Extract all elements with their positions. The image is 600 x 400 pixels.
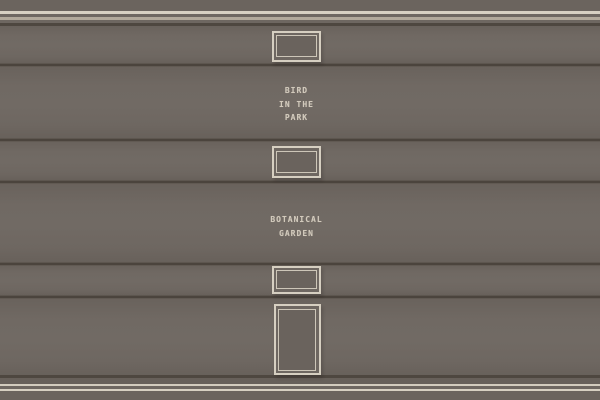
picture-frame-small-1-canvas (276, 35, 317, 57)
picture-frame-small-1[interactable] (272, 31, 322, 62)
wall-top-band (0, 0, 600, 11)
gallery-wall-scene: BIRD IN THE PARK BOTANICAL GARDEN (0, 0, 600, 400)
exhibit-label-garden-line-1: BOTANICAL (0, 213, 593, 227)
picture-frame-tall-canvas (278, 309, 316, 371)
cornice-line-bright (0, 11, 600, 14)
picture-frame-tall[interactable] (274, 304, 321, 375)
panel-divider-2 (0, 138, 600, 142)
baseboard-line-dark (0, 375, 600, 378)
picture-frame-small-3[interactable] (272, 266, 322, 294)
cornice-line-tan (0, 17, 600, 20)
exhibit-label-botanical-garden: BOTANICAL GARDEN (0, 213, 593, 241)
panel-divider-3 (0, 180, 600, 184)
panel-divider-5 (0, 295, 600, 299)
exhibit-label-bird-line-3: PARK (0, 111, 593, 125)
cornice-line-dark (0, 23, 600, 26)
picture-frame-small-2-canvas (276, 151, 317, 174)
picture-frame-small-2[interactable] (272, 146, 322, 178)
panel-divider-1 (0, 63, 600, 67)
baseboard-line-bright-2 (0, 389, 600, 391)
baseboard-line-bright-1 (0, 384, 600, 386)
picture-frame-small-3-canvas (276, 270, 317, 289)
wall-bottom-band (0, 391, 600, 400)
exhibit-label-bird-line-2: IN THE (0, 98, 593, 112)
exhibit-label-garden-line-2: GARDEN (0, 227, 593, 241)
exhibit-label-bird-in-the-park: BIRD IN THE PARK (0, 84, 593, 125)
exhibit-label-bird-line-1: BIRD (0, 84, 593, 98)
